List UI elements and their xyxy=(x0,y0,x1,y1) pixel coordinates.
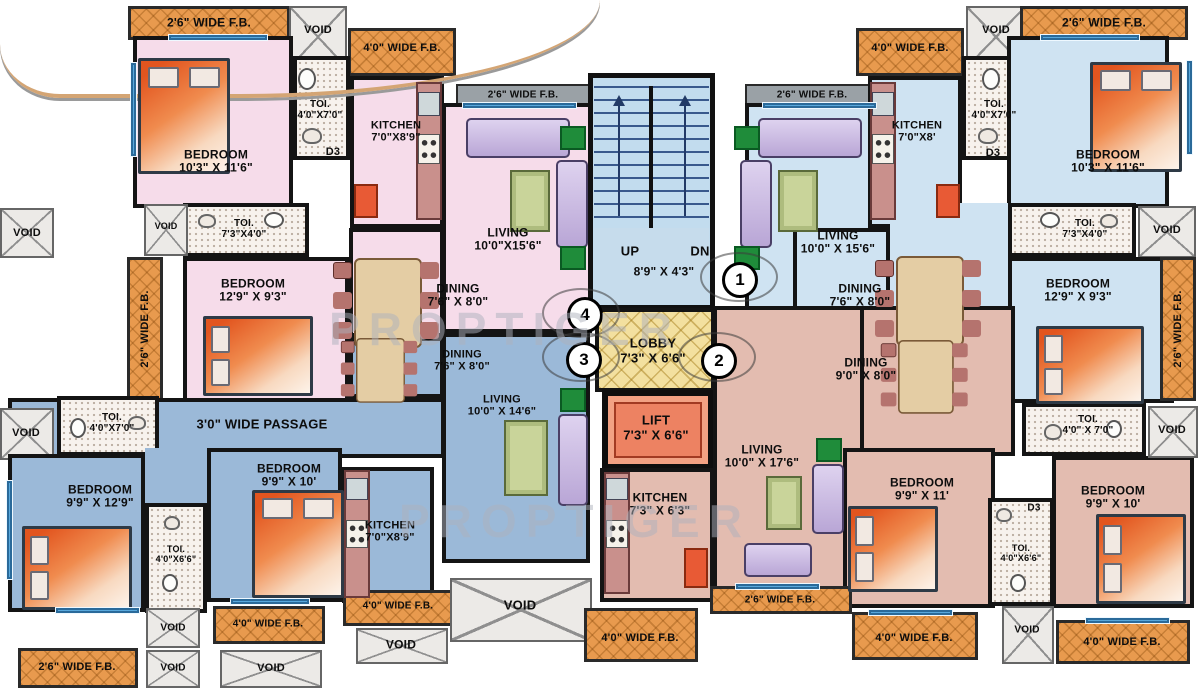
wc-fixture xyxy=(264,212,284,228)
armchairs xyxy=(556,160,588,248)
void-label-top-left: VOID xyxy=(304,24,332,36)
wc-fixture xyxy=(162,574,178,592)
void-label-left-f3: VOID xyxy=(12,427,40,439)
living-label-f2: LIVING 10'0" X 17'6" xyxy=(725,444,799,471)
watermark-2: PROPTIGER xyxy=(399,496,751,548)
fridge xyxy=(684,548,708,588)
living-label-f1: LIVING 10'0" X 15'6" xyxy=(801,230,875,257)
stair-dim-label: 8'9" X 4'3" xyxy=(634,265,695,278)
void-label-bl-1: VOID xyxy=(160,622,185,633)
armchairs xyxy=(740,160,772,248)
door-label-f4-d3: D3 xyxy=(326,146,340,158)
toi-label-f2-top: TOI. 4'0" X 7'0" xyxy=(1063,414,1114,436)
void-label-br: VOID xyxy=(1014,624,1039,635)
void-label-bl-3: VOID xyxy=(257,662,285,674)
toi-label-f4-1: TOI. 4'0"X7'0" xyxy=(298,99,343,121)
wc-fixture xyxy=(70,418,86,438)
fridge xyxy=(936,184,960,218)
basin-fixture xyxy=(164,516,180,530)
window xyxy=(55,607,140,614)
fb-label-40-top-left: 4'0" WIDE F.B. xyxy=(363,42,440,54)
sofa xyxy=(744,543,812,577)
stair-divider xyxy=(649,86,653,228)
kitchen-sink xyxy=(418,92,440,116)
tv-unit xyxy=(816,438,842,462)
tv-unit xyxy=(560,126,586,150)
wc-fixture xyxy=(1040,212,1060,228)
center-table xyxy=(504,420,548,496)
bed xyxy=(252,490,344,598)
void-label-small-f4: VOID xyxy=(155,221,178,231)
tv-unit xyxy=(734,126,760,150)
bed xyxy=(1036,326,1144,404)
fb-label-26-bottom-left: 2'6" WIDE F.B. xyxy=(38,661,115,673)
toi-label-f1-1: TOI. 4'0"X7'0" xyxy=(972,99,1017,121)
bed xyxy=(848,506,938,592)
fb-label-vert-right: 2'6" WIDE F.B. xyxy=(1172,290,1184,367)
void-label-right-f1: VOID xyxy=(1153,224,1181,236)
void-label-left-f4: VOID xyxy=(13,227,41,239)
basin-fixture xyxy=(302,128,322,144)
sofa xyxy=(758,118,862,158)
fb-label-top-right: 2'6" WIDE F.B. xyxy=(1062,16,1146,29)
window xyxy=(168,34,268,41)
kitchen-sink xyxy=(346,478,368,500)
fb-label-top-left: 2'6" WIDE F.B. xyxy=(167,16,251,29)
bedroom-label-f2-1: BEDROOM 9'9" X 11' xyxy=(890,477,954,504)
fb-label-26-bottom-right: 2'6" WIDE F.B. xyxy=(745,594,816,605)
fb-label-40-br-2: 4'0" WIDE F.B. xyxy=(1083,636,1160,648)
window xyxy=(1085,617,1170,624)
filler-f3 xyxy=(145,448,207,503)
toi-label-f1-2: TOI. 7'3"X4'0" xyxy=(1063,218,1108,240)
toi-label-f3-2: TOI. 4'0"X6'6" xyxy=(156,544,197,564)
armchairs xyxy=(812,464,844,534)
toi-label-f3-1: TOI. 4'0"X7'0" xyxy=(90,412,135,434)
center-table xyxy=(510,170,550,232)
bedroom-label-f3-1: BEDROOM 9'9" X 12'9" xyxy=(66,484,134,511)
void-label-bl-4: VOID xyxy=(386,638,416,651)
kitchen-label-f1: KITCHEN 7'0"X8' xyxy=(892,120,942,145)
door-label-f2-d3: D3 xyxy=(1027,502,1040,513)
center-table xyxy=(778,170,818,232)
basin-fixture xyxy=(1044,424,1062,440)
watermark-1: PROPTIGER xyxy=(329,304,681,356)
window xyxy=(462,102,577,109)
wc-fixture xyxy=(1010,574,1026,592)
void-label-bl-2: VOID xyxy=(160,662,185,673)
fb-label-40-br-1: 4'0" WIDE F.B. xyxy=(875,632,952,644)
dining-label-f2: DINING 9'0" X 8'0" xyxy=(836,357,897,384)
door-label-f1-d3: D3 xyxy=(986,147,1000,159)
stair-dn-arrow xyxy=(684,106,686,216)
void-label-big: VOID xyxy=(504,599,537,614)
stair-up-label: UP xyxy=(621,245,639,260)
tv-unit xyxy=(560,388,586,412)
stair-up-arrow xyxy=(618,106,620,216)
window xyxy=(735,583,820,590)
bedroom-label-f4-2: BEDROOM 12'9" X 9'3" xyxy=(219,278,287,305)
center-table xyxy=(766,476,802,530)
fridge xyxy=(354,184,378,218)
kitchen-label-f4: KITCHEN 7'0"X8'9" xyxy=(371,120,421,145)
bedroom-label-f1-1: BEDROOM 10'3" X 11'6" xyxy=(1071,149,1145,176)
stair-dn-arrowhead xyxy=(679,95,691,106)
fb-label-gray-f1: 2'6" WIDE F.B. xyxy=(777,89,848,100)
wc-fixture xyxy=(982,68,1000,90)
tv-unit xyxy=(560,246,586,270)
kitchen-stove xyxy=(418,134,440,164)
living-label-f4: LIVING 10'0"X15'6" xyxy=(474,227,541,254)
window xyxy=(1186,60,1193,155)
fb-label-40-bl-1: 4'0" WIDE F.B. xyxy=(233,618,304,629)
armchairs xyxy=(558,414,588,506)
passage-label-f3: 3'0" WIDE PASSAGE xyxy=(197,418,328,433)
toi-label-f2-mid: TOI. 4'0"X6'6" xyxy=(1001,543,1042,563)
window xyxy=(230,598,310,605)
bedroom-label-f2-2: BEDROOM 9'9" X 10' xyxy=(1081,485,1145,512)
toi-label-f4-2: TOI. 7'3"X4'0" xyxy=(222,218,267,240)
stair-dn-label: DN xyxy=(690,245,709,260)
lift-label: LIFT 7'3" X 6'6" xyxy=(623,413,689,442)
window xyxy=(6,480,13,580)
flat-number-1: 1 xyxy=(722,262,758,298)
kitchen-stove xyxy=(872,134,894,164)
sofa xyxy=(466,118,570,158)
fb-label-vert-left: 2'6" WIDE F.B. xyxy=(139,290,151,367)
dining-label-f1: DINING 7'6" X 8'0" xyxy=(830,283,891,310)
bed xyxy=(1096,514,1186,604)
bed xyxy=(203,316,313,396)
fb-label-40-bc: 4'0" WIDE F.B. xyxy=(601,632,678,644)
fb-label-gray-f4: 2'6" WIDE F.B. xyxy=(488,89,559,100)
basin-fixture xyxy=(198,214,216,228)
void-label-right-f2: VOID xyxy=(1158,424,1186,436)
fb-label-40-top-right: 4'0" WIDE F.B. xyxy=(871,42,948,54)
bed xyxy=(22,526,132,610)
window xyxy=(130,62,137,157)
wc-fixture xyxy=(298,68,316,90)
stair-up-arrowhead xyxy=(613,95,625,106)
bedroom-label-f3-2: BEDROOM 9'9" X 10' xyxy=(257,463,321,490)
window xyxy=(762,102,877,109)
bedroom-label-f1-2: BEDROOM 12'9" X 9'3" xyxy=(1044,278,1112,305)
void-label-top-right: VOID xyxy=(982,24,1010,36)
window xyxy=(1040,34,1140,41)
fb-label-40-bl-2: 4'0" WIDE F.B. xyxy=(363,600,434,611)
window xyxy=(868,609,953,616)
basin-fixture xyxy=(978,128,998,144)
living-label-f3: LIVING 10'0" X 14'6" xyxy=(468,394,536,419)
bedroom-label-f4-1: BEDROOM 10'3" X 11'6" xyxy=(179,149,253,176)
flat-number-2: 2 xyxy=(701,343,737,379)
floor-plan: 2'6" WIDE F.B.VOID4'0" WIDE F.B.BEDROOM … xyxy=(0,0,1200,690)
basin-fixture xyxy=(996,508,1012,522)
